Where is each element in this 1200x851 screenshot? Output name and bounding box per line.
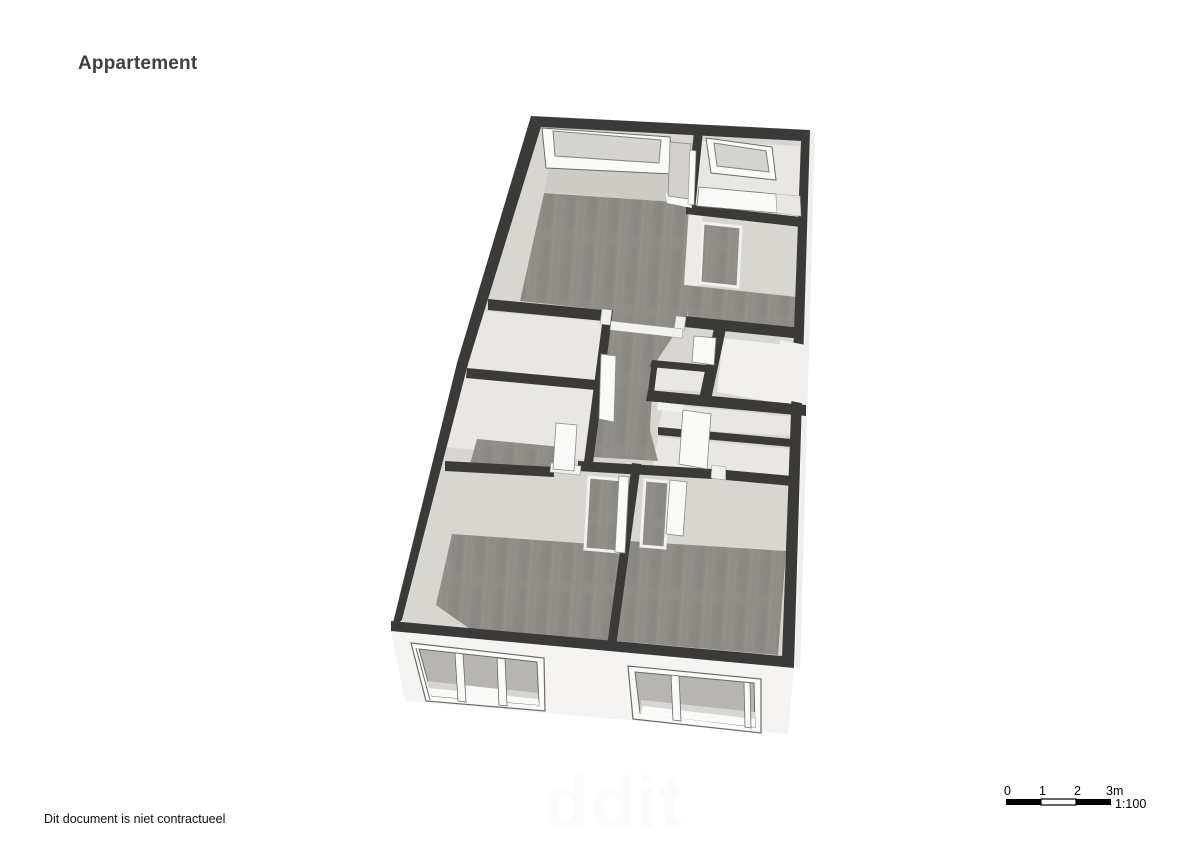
svg-text:0: 0 <box>1004 784 1011 798</box>
svg-text:2: 2 <box>1074 784 1081 798</box>
svg-text:1:100: 1:100 <box>1115 797 1146 811</box>
svg-text:3m: 3m <box>1106 784 1123 798</box>
svg-text:1: 1 <box>1039 784 1046 798</box>
